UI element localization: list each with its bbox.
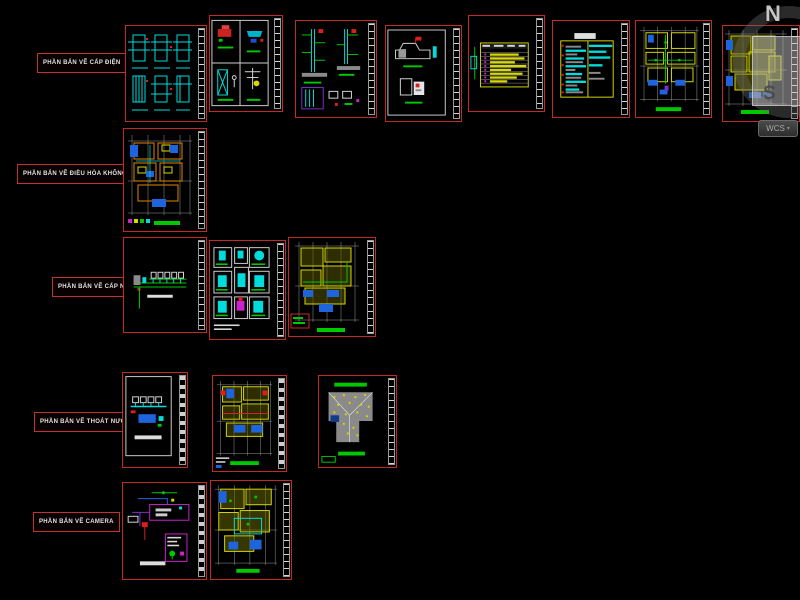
dropdown-arrow-icon: ▾ xyxy=(787,125,790,132)
sheet-drawing xyxy=(296,21,366,117)
title-block-strip xyxy=(367,240,374,334)
sheet-electrical-single-line-diagram[interactable] xyxy=(552,20,630,118)
title-block-strip xyxy=(453,28,460,119)
sheet-camera-floor-plan[interactable] xyxy=(210,480,292,580)
viewcube-north-label[interactable]: N xyxy=(760,1,786,27)
sheet-drawing xyxy=(636,21,701,117)
sheet-drawing xyxy=(469,16,534,111)
wcs-dropdown-button[interactable]: WCS ▾ xyxy=(758,120,798,137)
viewcube[interactable]: S xyxy=(752,36,800,106)
viewcube-south-label[interactable]: S xyxy=(763,83,776,105)
section-label-camera[interactable]: PHẦN BẢN VẼ CAMERA xyxy=(33,512,120,532)
sheet-drawing xyxy=(123,483,196,579)
sheet-drawing xyxy=(319,376,386,467)
sheet-drawing xyxy=(124,129,196,231)
sheet-electrical-load-schedule[interactable] xyxy=(468,15,545,112)
sheet-electrical-riser-details[interactable] xyxy=(295,20,377,118)
cad-model-space: PHẦN BẢN VẼ CẤP ĐIỆN PHẦN BẢN VẼ ĐIỀU HÒ… xyxy=(0,0,800,600)
title-block-strip xyxy=(388,378,395,465)
title-block-strip xyxy=(198,485,205,577)
sheet-hvac-floor-plan[interactable] xyxy=(123,128,207,232)
title-block-strip xyxy=(274,18,281,109)
sheet-electrical-pole-details[interactable] xyxy=(125,25,207,122)
title-block-strip xyxy=(277,243,284,337)
wcs-label: WCS xyxy=(766,124,785,133)
sheet-drawing xyxy=(210,241,275,339)
sheet-drawing xyxy=(210,16,272,111)
section-label-text: PHẦN BẢN VẼ THOÁT NƯỚC xyxy=(40,419,131,425)
title-block-strip xyxy=(179,375,186,465)
title-block-strip xyxy=(536,18,543,109)
sheet-drainage-riser-diagram[interactable] xyxy=(122,372,188,468)
sheet-drawing xyxy=(211,481,281,579)
section-label-text: PHẦN BẢN VẼ CAMERA xyxy=(39,519,114,525)
sheet-electrical-equipment-elevations[interactable] xyxy=(385,25,462,122)
title-block-strip xyxy=(283,483,290,577)
title-block-strip xyxy=(278,378,285,469)
sheet-electrical-floor-plan[interactable] xyxy=(635,20,712,118)
section-label-text: PHẦN BẢN VẼ CẤP ĐIỆN xyxy=(43,60,121,66)
sheet-drawing xyxy=(553,21,619,117)
section-label-electrical[interactable]: PHẦN BẢN VẼ CẤP ĐIỆN xyxy=(37,53,127,73)
title-block-strip xyxy=(368,23,375,115)
title-block-strip xyxy=(198,131,205,229)
title-block-strip xyxy=(198,240,205,330)
title-block-strip xyxy=(703,23,710,115)
sheet-water-supply-details[interactable] xyxy=(209,240,286,340)
sheet-drawing xyxy=(386,26,451,121)
sheet-camera-schematic[interactable] xyxy=(122,482,207,580)
sheet-drawing xyxy=(124,238,196,332)
sheet-drawing xyxy=(123,373,177,467)
sheet-water-supply-elevation[interactable] xyxy=(123,237,207,333)
title-block-strip xyxy=(621,23,628,115)
sheet-water-supply-floor-plan[interactable] xyxy=(288,237,376,337)
title-block-strip xyxy=(198,28,205,119)
sheet-drawing xyxy=(289,238,365,336)
sheet-drainage-floor-plan[interactable] xyxy=(212,375,287,472)
sheet-electrical-fixture-details[interactable] xyxy=(209,15,283,112)
sheet-drawing xyxy=(213,376,276,471)
sheet-drawing xyxy=(126,26,196,121)
sheet-roof-drainage-plan[interactable] xyxy=(318,375,397,468)
